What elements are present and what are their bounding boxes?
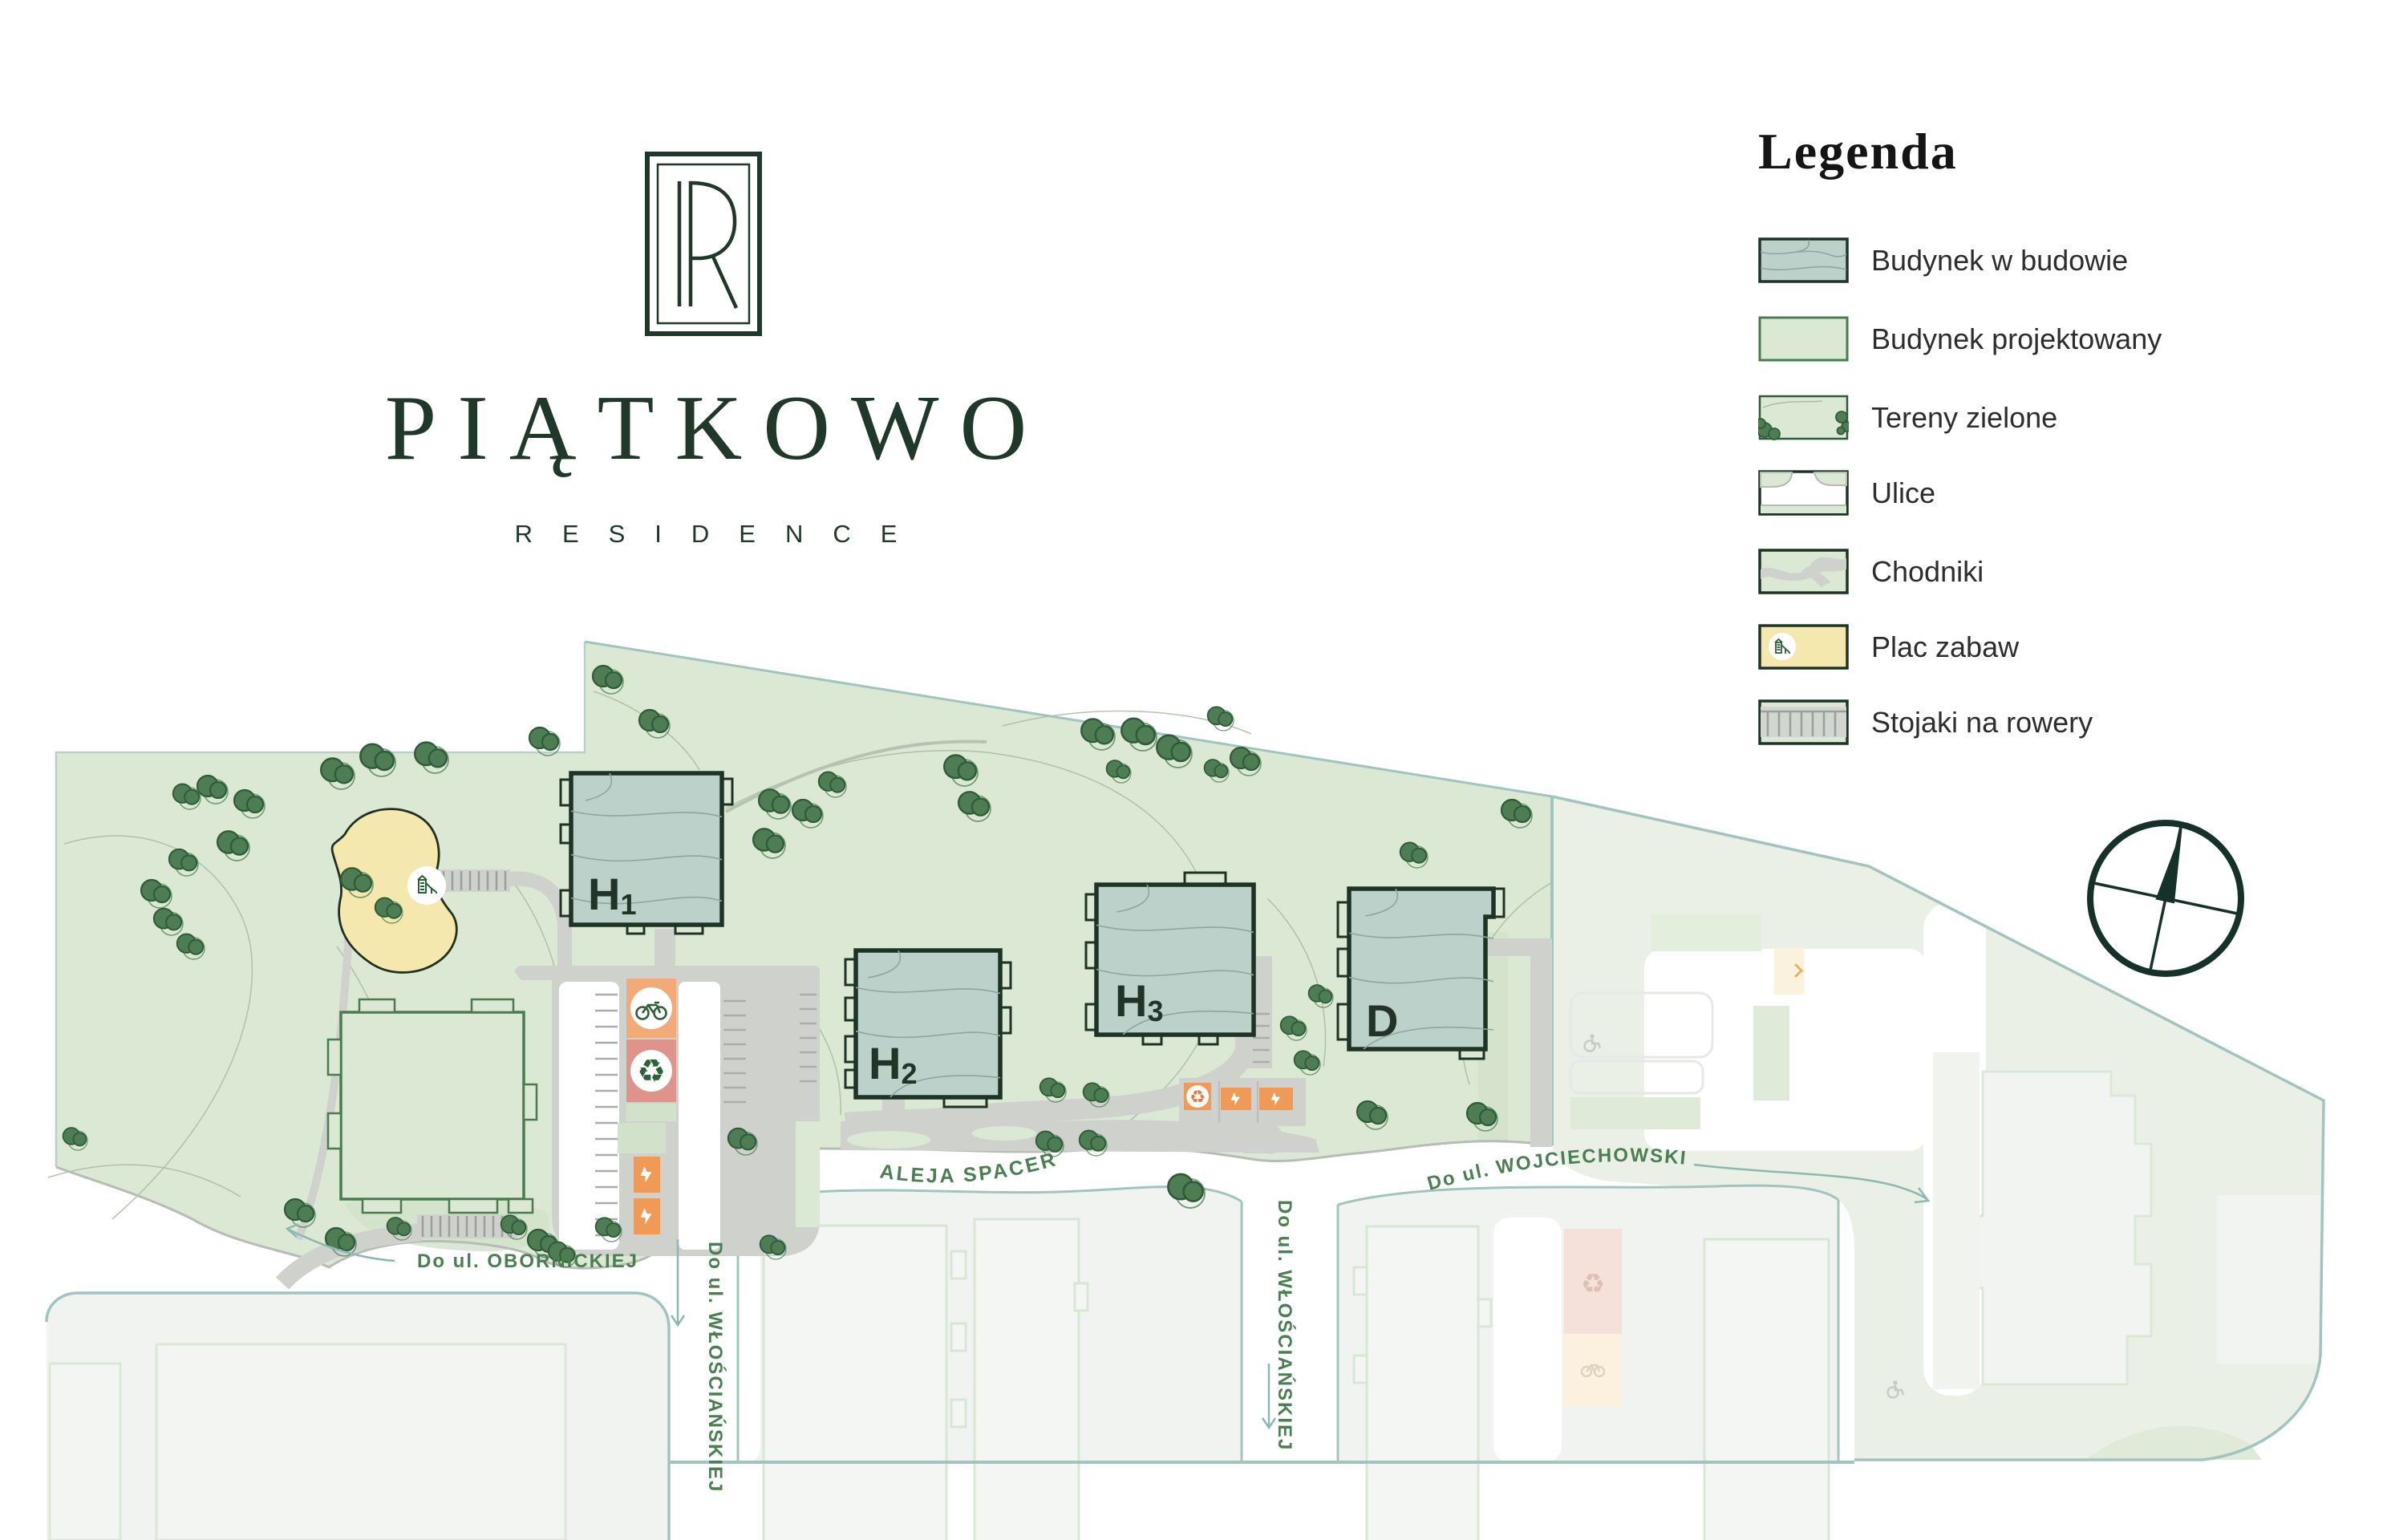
legend-item-streets: Ulice — [1758, 470, 1935, 516]
logo-monogram — [644, 151, 763, 337]
swatch-streets — [1758, 470, 1849, 516]
site-plan-map[interactable]: ♻ — [0, 0, 2391, 1540]
legend-item-planned: Budynek projektowany — [1758, 316, 2162, 362]
recycle-icon: ♻ — [1581, 1269, 1605, 1299]
building-d[interactable]: D — [1338, 889, 1504, 1059]
legend-item-bike-racks: Stojaki na rowery — [1758, 699, 2093, 745]
swatch-bike-racks — [1758, 699, 1849, 745]
swatch-under-construction — [1758, 237, 1849, 283]
tree — [1208, 707, 1234, 731]
logo-title: PIĄTKOWO — [265, 375, 1147, 482]
recycle-icon: ♻ — [637, 1054, 666, 1089]
swatch-greenery — [1758, 395, 1849, 440]
swatch-playground — [1758, 624, 1849, 670]
street-label-obornickiej: Do ul. OBORNICKIEJ — [417, 1250, 638, 1272]
street-label-wloscianskiej-west: Do ul. WŁOŚCIAŃSKIEJ — [704, 1242, 727, 1493]
building-h3[interactable]: H3 — [1086, 873, 1263, 1044]
svg-text:D: D — [1366, 995, 1398, 1046]
legend-title: Legenda — [1758, 122, 1958, 181]
masterplan-page: ♻ — [0, 0, 2391, 1540]
swatch-planned — [1758, 316, 1849, 362]
building-h2[interactable]: H2 — [845, 950, 1011, 1107]
legend-item-playground: Plac zabaw — [1758, 624, 2019, 670]
street-label-wloscianskiej-east: Do ul. WŁOŚCIAŃSKIEJ — [1274, 1200, 1296, 1451]
legend-item-sidewalks: Chodniki — [1758, 549, 1984, 594]
existing-area-bottom-middle: ♻ — [669, 1185, 1854, 1540]
swatch-sidewalks — [1758, 549, 1849, 594]
existing-area-bottom-left — [47, 1293, 669, 1540]
logo-subtitle: RESIDENCE — [265, 520, 1147, 549]
recycle-icon: ♻ — [1189, 1087, 1206, 1107]
legend-item-greenery: Tereny zielone — [1758, 395, 2057, 440]
building-h1[interactable]: H1 — [561, 773, 732, 934]
legend-item-under-construction: Budynek w budowie — [1758, 237, 2128, 283]
building-planned[interactable] — [328, 999, 537, 1213]
compass-icon — [2078, 811, 2253, 986]
